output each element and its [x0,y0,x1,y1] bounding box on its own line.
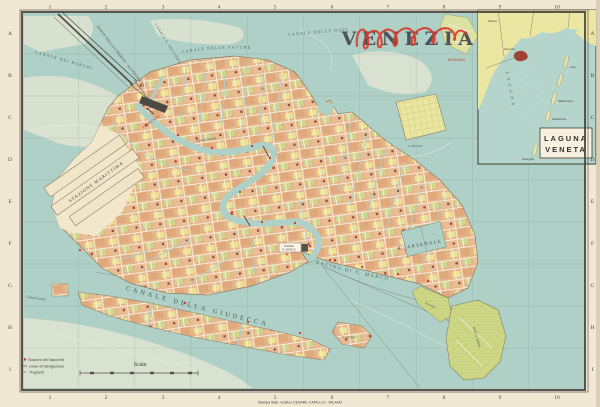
grid-row-right-h: H [591,325,595,331]
label-san-michele: S. Michele [408,144,423,148]
page-edge-shadow [596,0,600,407]
grid-row-right-c: C [591,115,595,121]
grid-col-top-5: 5 [274,5,277,11]
grid-row-left-a: A [8,31,12,37]
grid-row-right-g: G [591,283,595,289]
publisher-imprint: Stampa Stab. Grafico CESARE CAPELLO - MI… [258,401,343,405]
grid-col-top-7: 7 [387,5,390,11]
legend-traghetti-label: Traghetti [29,370,44,374]
grid-row-left-i: I [9,367,11,373]
inset-title-line2: VENETA [545,145,587,154]
grid-col-top-8: 8 [443,5,446,11]
grid-row-left-g: G [8,283,12,289]
grid-col-top-3: 3 [162,5,165,11]
grid-col-top-10: 10 [554,5,560,11]
grid-col-top-4: 4 [218,5,221,11]
scale-label: Scala [134,362,147,368]
inset-laguna-veneta: LAGUNA Mestre Venezia Lido Malamocco Pel… [478,10,596,164]
inset-label-malamocco: Malamocco [558,99,574,103]
grid-col-bottom-8: 8 [443,395,446,401]
legend-vaporetti-label: Stazioni dei Vaporetti [28,358,64,362]
grid-row-right-a: A [591,31,595,37]
grid-row-right-i: I [592,367,594,373]
grid-col-bottom-1: 1 [49,395,52,401]
inset-label-pellestrina: Pellestrina [552,117,566,121]
label-san-giorgio: S. Giorgio [342,335,356,339]
grid-row-right-d: D [591,157,595,163]
grid-row-left-b: B [8,73,12,79]
grid-col-bottom-7: 7 [387,395,390,401]
grid-row-left-h: H [8,325,12,331]
grid-col-bottom-9: 9 [499,395,502,401]
map-title: VENEZIA [340,28,478,50]
grid-row-right-b: B [591,73,595,79]
grid-row-left-c: C [8,115,12,121]
grid-col-top-6: 6 [331,5,334,11]
grid-col-top-9: 9 [499,5,502,11]
venice-map: CANALE DEI BORGHI CANALE S. SECONDO CANA… [0,0,600,407]
inset-label-venezia: Venezia [504,47,515,51]
grid-row-left-d: D [8,157,12,163]
grid-row-left-f: F [8,241,11,247]
grid-col-bottom-2: 2 [105,395,108,401]
legend-navigazione-label: Linee di Navigazione [29,364,64,368]
inset-label-chioggia: Chioggia [522,157,534,161]
grid-col-top-1: 1 [49,5,52,11]
inset-label-lido: Lido [570,65,576,69]
label-murano: MURANO [448,58,465,62]
grid-col-bottom-3: 3 [162,395,165,401]
label-piazza-line2: S. MARCO [282,248,297,252]
sacca-fisola [52,284,68,296]
grid-col-bottom-10: 10 [554,395,560,401]
grid-col-top-2: 2 [105,5,108,11]
legend-vaporetto-dot [24,358,26,360]
inset-label-mestre: Mestre [488,19,498,23]
map-page: CANALE DEI BORGHI CANALE S. SECONDO CANA… [0,0,600,407]
grid-col-bottom-4: 4 [218,395,221,401]
grid-row-right-f: F [591,241,594,247]
inset-title-line1: LAGUNA [544,134,588,143]
